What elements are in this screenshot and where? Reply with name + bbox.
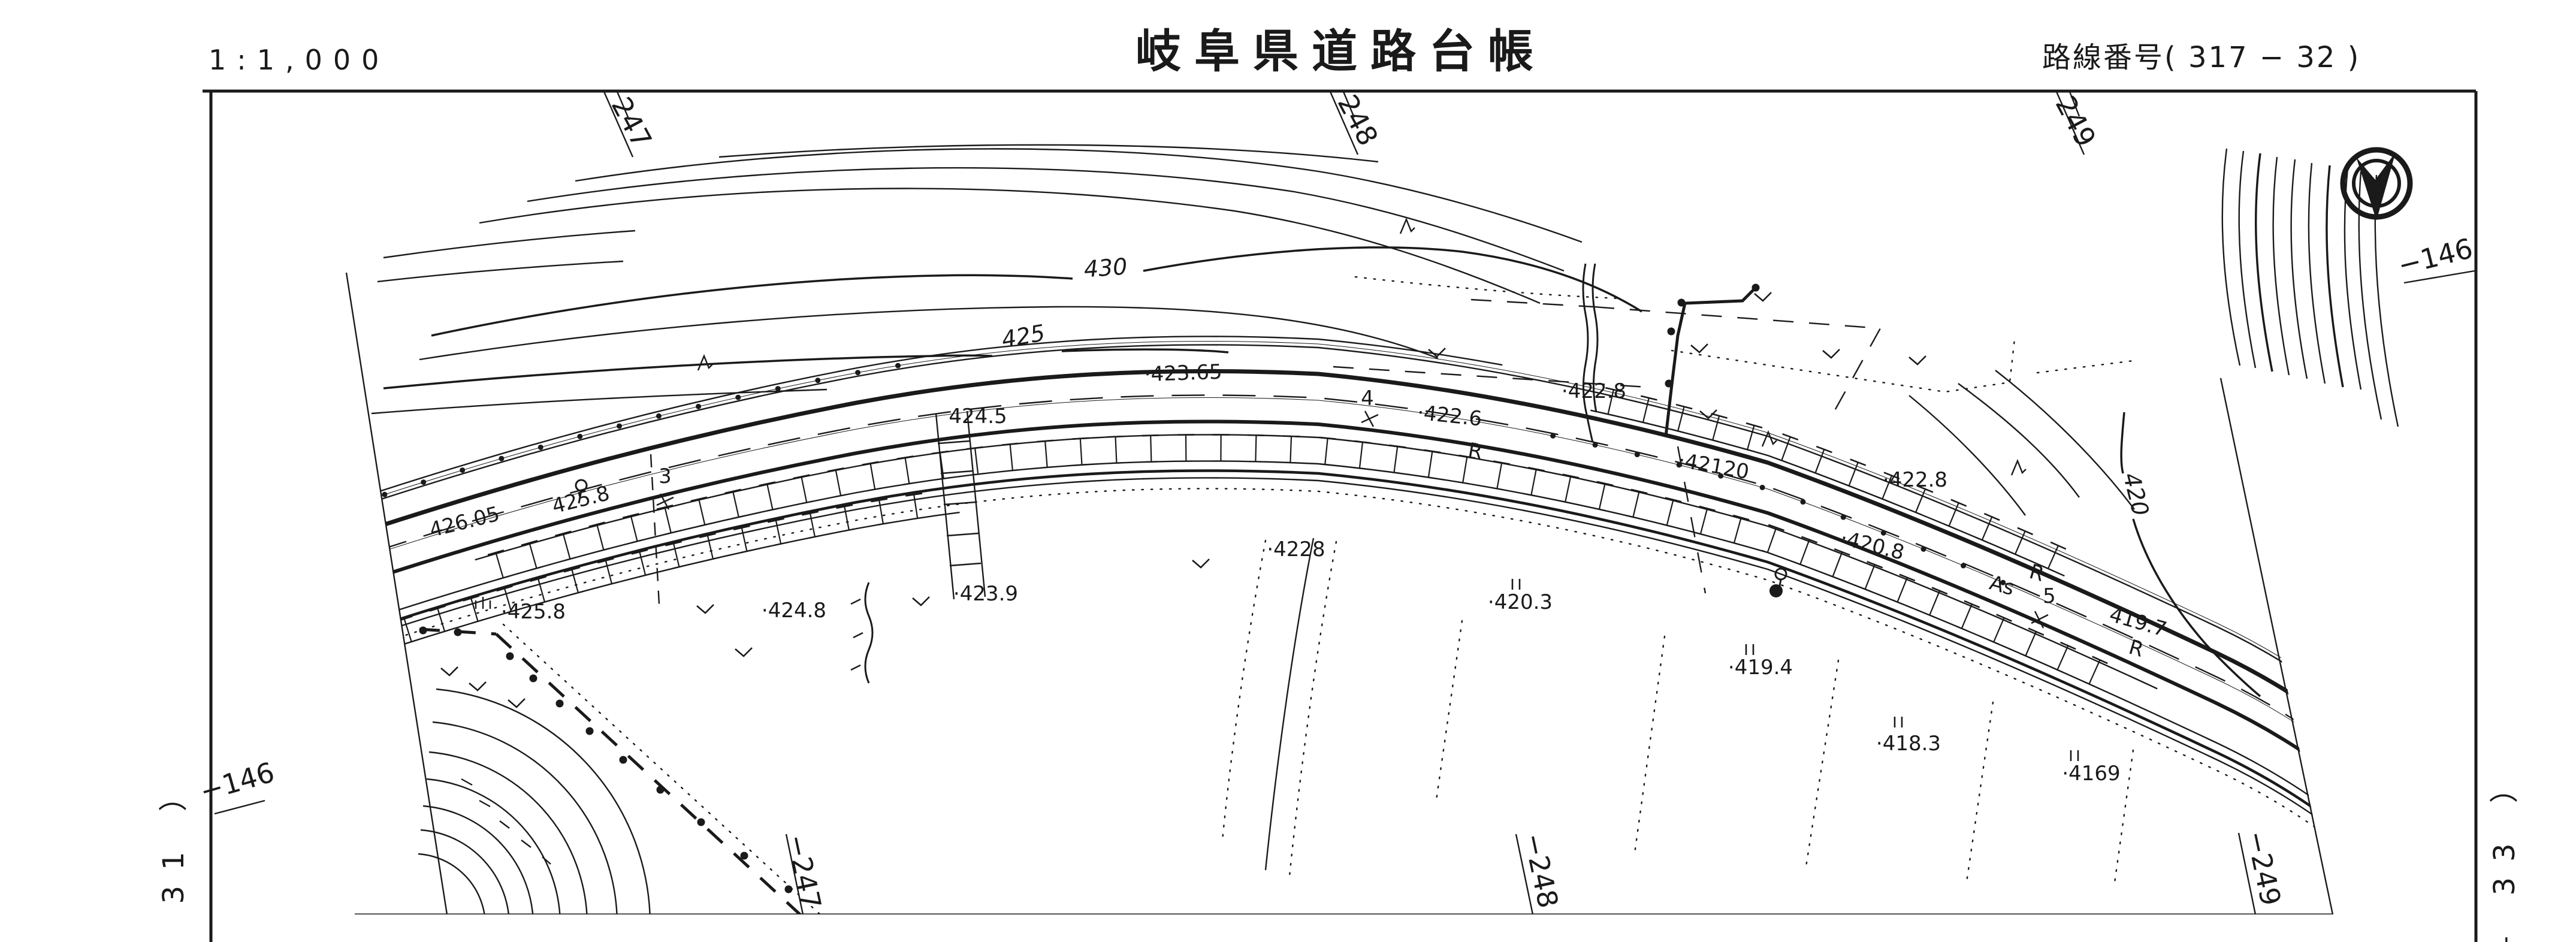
v-symbol bbox=[1691, 344, 1708, 352]
dot-symbol bbox=[697, 819, 705, 826]
paddy-symbol bbox=[2071, 750, 2078, 761]
elev-4169: ·4169 bbox=[2062, 762, 2120, 786]
grid-top-248: 248 bbox=[1331, 89, 1385, 151]
dot-symbol bbox=[419, 627, 427, 635]
grid-bottom-249: −249 bbox=[2240, 828, 2287, 908]
grid-top-249: 249 bbox=[2049, 90, 2103, 152]
v-symbol bbox=[441, 667, 458, 675]
v-symbol bbox=[1823, 349, 1840, 358]
dot-symbol bbox=[785, 886, 793, 893]
dot-symbol bbox=[556, 700, 564, 708]
elev-423-65: ·423.65 bbox=[1144, 360, 1222, 387]
elev-418-3: ·418.3 bbox=[1876, 732, 1941, 756]
dot-symbol bbox=[530, 675, 537, 683]
v-symbol bbox=[1754, 292, 1771, 301]
dot-symbol bbox=[620, 756, 627, 764]
boundary-wall bbox=[419, 624, 829, 935]
elev-419-7: 419.7 bbox=[2107, 603, 2170, 642]
dot-symbol bbox=[1665, 380, 1673, 388]
contour-label-420: 420 bbox=[2118, 470, 2154, 518]
dot-symbol bbox=[657, 786, 665, 794]
map-drawing bbox=[327, 145, 2398, 935]
map-canvas: 1:1,000 岐阜県道路台帳 路線番号( 317 − 32 ) bbox=[0, 0, 2576, 942]
paddy-symbol bbox=[1895, 717, 1902, 727]
contour-label-430: 430 bbox=[1083, 253, 1128, 283]
scale-label: 1:1,000 bbox=[209, 44, 389, 76]
elev-420-8: ·420.8 bbox=[1838, 526, 1907, 565]
road-band bbox=[327, 336, 2340, 854]
sheet-ref-left: — 31 ） bbox=[157, 767, 191, 942]
lambda-symbol bbox=[2012, 461, 2026, 475]
guardrail-dots bbox=[1550, 433, 2006, 585]
elev-423-9: ·423.9 bbox=[953, 582, 1018, 606]
v-symbol bbox=[1909, 356, 1926, 364]
blob-symbol bbox=[1769, 584, 1783, 597]
dot-symbol bbox=[586, 727, 594, 735]
station-5: 5 bbox=[2043, 584, 2056, 608]
elev-420-3: ·420.3 bbox=[1488, 590, 1553, 614]
elev-422-8-a: ·422.8 bbox=[1562, 379, 1626, 403]
v-symbol bbox=[469, 682, 486, 690]
curve-r-3: R bbox=[2126, 635, 2146, 662]
elev-4228: ·4228 bbox=[1267, 538, 1325, 561]
paddy-symbol bbox=[1746, 644, 1753, 655]
v-symbol bbox=[913, 597, 929, 605]
curve-r-1: R bbox=[1466, 438, 1484, 464]
station-3: 3 bbox=[659, 464, 672, 488]
branch-path bbox=[1222, 538, 1336, 876]
page-title: 岐阜県道路台帳 bbox=[1136, 25, 1547, 78]
dot-symbol bbox=[1668, 328, 1675, 336]
v-symbol bbox=[508, 699, 525, 707]
dot-symbol bbox=[1678, 299, 1686, 307]
elev-424-8: ·424.8 bbox=[762, 599, 826, 623]
grid-top-247: 247 bbox=[605, 92, 659, 153]
elev-422-6: ·422.6 bbox=[1416, 401, 1483, 431]
elev-422-8-b: ·422.8 bbox=[1883, 468, 1947, 492]
grid-right-146: −146 bbox=[2394, 232, 2476, 282]
road-ledger-sheet: 1:1,000 岐阜県道路台帳 路線番号( 317 − 32 ) bbox=[0, 0, 2576, 942]
curve-r-2: R bbox=[2027, 560, 2047, 587]
dot-symbol bbox=[506, 653, 514, 660]
v-symbol bbox=[1192, 559, 1209, 567]
elev-419-4: ·419.4 bbox=[1728, 656, 1793, 680]
v-symbol bbox=[697, 605, 714, 613]
station-4: 4 bbox=[1361, 387, 1374, 410]
v-symbol bbox=[735, 648, 752, 656]
stone-wall bbox=[851, 582, 872, 683]
grid-left-146: −146 bbox=[196, 756, 277, 808]
paddy-symbol bbox=[1512, 579, 1520, 590]
dot-symbol bbox=[1752, 284, 1760, 292]
elev-424-5: 424.5 bbox=[949, 404, 1007, 428]
sheet-ref-right: — 33 ） bbox=[2488, 759, 2521, 942]
elev-425-8: ·425.8 bbox=[501, 600, 566, 624]
dot-symbol bbox=[454, 629, 462, 636]
slope-fan-lower-left bbox=[418, 689, 650, 926]
grid-bottom-248: −248 bbox=[1517, 830, 1565, 911]
elev-425-8-road: 425.8 bbox=[549, 481, 612, 518]
grid-bottom-247: −247 bbox=[780, 831, 828, 912]
lambda-symbol bbox=[1400, 219, 1415, 234]
contour-lines-upper bbox=[372, 145, 1642, 413]
route-number-label: 路線番号( 317 − 32 ) bbox=[2042, 41, 2360, 74]
dot-symbol bbox=[741, 852, 748, 860]
